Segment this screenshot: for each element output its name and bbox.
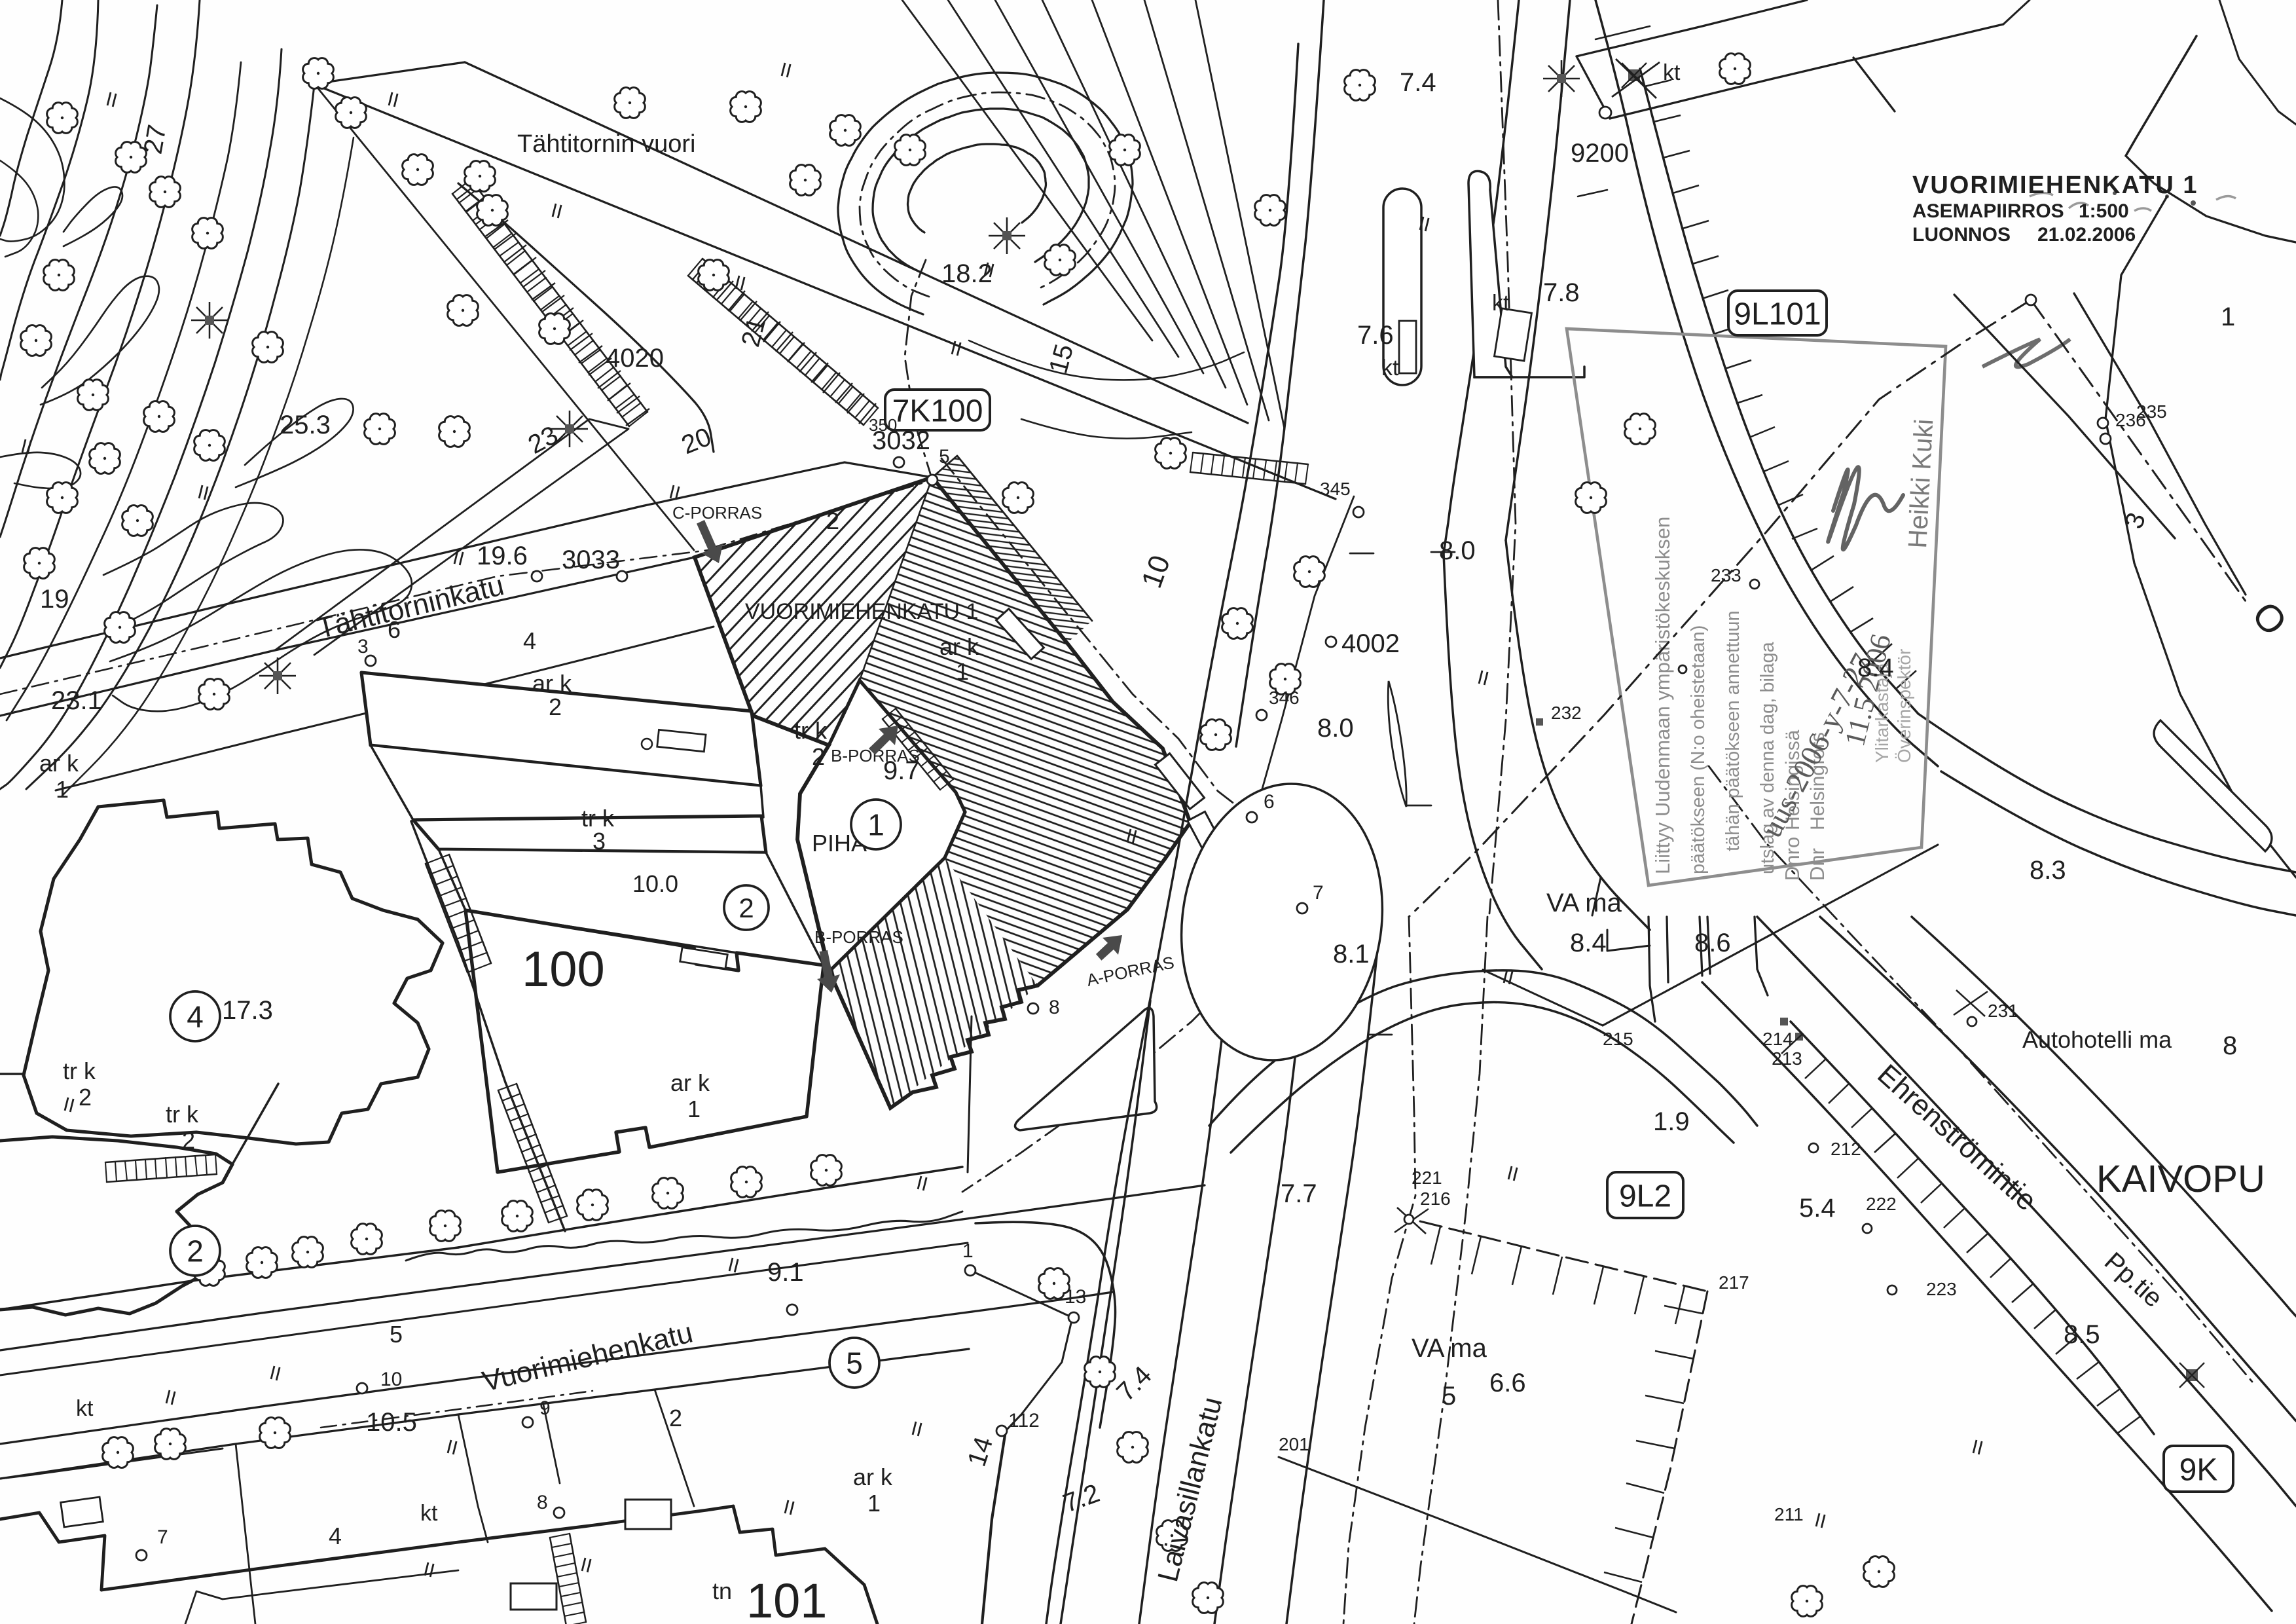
svg-text:2: 2: [182, 1127, 195, 1154]
svg-text:18.2: 18.2: [941, 259, 993, 288]
svg-text:4: 4: [523, 627, 536, 654]
svg-text:Dnr: Dnr: [1806, 848, 1829, 881]
svg-text:8.0: 8.0: [1439, 536, 1476, 565]
svg-text:1: 1: [2221, 303, 2235, 331]
svg-text:201: 201: [1279, 1434, 1309, 1454]
svg-text:ar k: ar k: [939, 633, 979, 660]
svg-text:112: 112: [1008, 1410, 1040, 1431]
svg-text:VA ma: VA ma: [1412, 1334, 1487, 1363]
svg-text:4: 4: [329, 1522, 342, 1549]
svg-text:7.8: 7.8: [1543, 278, 1580, 307]
svg-text:tn: tn: [712, 1578, 732, 1604]
svg-text:1: 1: [962, 1240, 974, 1262]
svg-text:KAIVOPU: KAIVOPU: [2096, 1158, 2265, 1200]
svg-text:7.6: 7.6: [1357, 321, 1394, 350]
svg-text:tähän päätökseen annettuun: tähän päätökseen annettuun: [1722, 610, 1743, 851]
svg-text:9200: 9200: [1571, 139, 1629, 168]
svg-text:5: 5: [939, 446, 950, 468]
svg-text:7K100: 7K100: [892, 394, 983, 428]
svg-text:23.1: 23.1: [51, 686, 102, 715]
svg-text:9: 9: [539, 1397, 551, 1419]
svg-text:2: 2: [669, 1405, 682, 1431]
svg-text:17.3: 17.3: [222, 996, 273, 1025]
svg-text:VUORIMIEHENKATU 1: VUORIMIEHENKATU 1: [1912, 172, 2198, 199]
svg-text:VUORIMIEHENKATU 1: VUORIMIEHENKATU 1: [745, 599, 978, 624]
svg-text:4002: 4002: [1341, 629, 1400, 658]
svg-text:päätökseen (N:o oheistetaan): päätökseen (N:o oheistetaan): [1688, 625, 1709, 874]
svg-text:ar k: ar k: [39, 750, 79, 777]
svg-text:3033: 3033: [562, 545, 620, 574]
svg-text:8.4: 8.4: [1570, 929, 1607, 957]
svg-text:Liittyy Uudenmaan ympäristökes: Liittyy Uudenmaan ympäristökeskuksen: [1651, 517, 1674, 874]
svg-text:8.5: 8.5: [2064, 1320, 2100, 1349]
svg-text:9.1: 9.1: [767, 1258, 804, 1287]
svg-text:ar k: ar k: [532, 670, 572, 697]
svg-text:1:500: 1:500: [2079, 200, 2129, 222]
svg-text:9.7: 9.7: [883, 756, 920, 785]
svg-text:25.3: 25.3: [280, 411, 331, 439]
svg-text:236: 236: [2115, 410, 2146, 430]
svg-text:ar k: ar k: [853, 1464, 893, 1490]
svg-text:9K: 9K: [2179, 1452, 2218, 1487]
svg-text:8.0: 8.0: [1317, 714, 1354, 743]
svg-text:Tähtitornin vuori: Tähtitornin vuori: [517, 130, 695, 158]
svg-text:7: 7: [157, 1526, 168, 1548]
svg-text:3: 3: [357, 636, 369, 657]
svg-text:2: 2: [738, 893, 754, 923]
svg-text:233: 233: [1711, 565, 1741, 585]
svg-text:10.0: 10.0: [632, 870, 678, 897]
svg-text:kt: kt: [420, 1501, 438, 1526]
svg-text:27: 27: [139, 122, 172, 156]
svg-text:9L2: 9L2: [1619, 1179, 1671, 1213]
svg-text:kt: kt: [1663, 60, 1681, 85]
svg-text:tr k: tr k: [794, 717, 828, 744]
svg-text:4: 4: [187, 1000, 204, 1034]
svg-text:6: 6: [388, 616, 401, 643]
svg-text:Dnro: Dnro: [1781, 837, 1804, 881]
svg-text:19: 19: [40, 585, 69, 614]
svg-text:19.6: 19.6: [477, 542, 528, 570]
svg-text:tr k: tr k: [166, 1101, 199, 1128]
svg-text:LUONNOS: LUONNOS: [1912, 224, 2011, 246]
svg-text:VA ma: VA ma: [1546, 889, 1622, 917]
svg-text:1: 1: [867, 1490, 881, 1517]
svg-text:213: 213: [1772, 1048, 1802, 1069]
svg-text:1: 1: [956, 658, 969, 685]
svg-text:2: 2: [79, 1084, 92, 1111]
svg-text:ASEMAPIIRROS: ASEMAPIIRROS: [1912, 200, 2064, 222]
svg-text:231: 231: [1988, 1001, 2018, 1021]
svg-text:kt: kt: [1492, 291, 1510, 316]
svg-text:9L101: 9L101: [1734, 297, 1821, 331]
svg-text:8.1: 8.1: [1333, 940, 1370, 969]
svg-text:350: 350: [869, 415, 897, 435]
svg-text:4020: 4020: [606, 344, 664, 373]
svg-text:tr k: tr k: [63, 1058, 96, 1084]
svg-text:10.5: 10.5: [366, 1408, 417, 1437]
svg-text:8: 8: [2223, 1031, 2237, 1060]
svg-text:7: 7: [1313, 882, 1324, 904]
svg-text:8.6: 8.6: [1694, 929, 1731, 957]
svg-text:7.4: 7.4: [1400, 68, 1436, 97]
svg-text:21.02.2006: 21.02.2006: [2037, 224, 2136, 246]
svg-text:101: 101: [746, 1574, 827, 1624]
svg-text:kt: kt: [76, 1396, 94, 1421]
svg-text:2: 2: [187, 1234, 204, 1268]
svg-text:1: 1: [867, 808, 884, 842]
svg-text:6: 6: [1264, 791, 1275, 813]
svg-text:215: 215: [1603, 1029, 1633, 1049]
svg-text:221: 221: [1412, 1168, 1442, 1188]
svg-text:1: 1: [56, 776, 69, 803]
svg-text:1: 1: [687, 1096, 701, 1122]
svg-text:216: 216: [1420, 1189, 1451, 1209]
svg-text:B-PORRAS: B-PORRAS: [814, 927, 903, 947]
svg-text:1.9: 1.9: [1653, 1107, 1690, 1136]
svg-text:214: 214: [1762, 1029, 1793, 1049]
svg-text:5.4: 5.4: [1799, 1194, 1836, 1223]
svg-text:5: 5: [1442, 1382, 1456, 1411]
svg-text:2: 2: [826, 507, 839, 534]
svg-text:13: 13: [1065, 1286, 1086, 1308]
svg-text:5: 5: [390, 1321, 403, 1348]
svg-text:100: 100: [522, 942, 605, 997]
svg-text:3: 3: [592, 828, 606, 855]
svg-text:utslag av denna dag, bilaga: utslag av denna dag, bilaga: [1757, 641, 1778, 874]
svg-text:8.3: 8.3: [2030, 856, 2066, 885]
svg-text:10: 10: [380, 1369, 402, 1390]
svg-text:8: 8: [1049, 997, 1060, 1018]
svg-text:222: 222: [1866, 1194, 1897, 1214]
svg-text:2: 2: [549, 693, 562, 720]
svg-text:7.7: 7.7: [1281, 1179, 1317, 1208]
svg-text:kt: kt: [1381, 356, 1399, 380]
svg-text:ar k: ar k: [670, 1069, 710, 1096]
svg-text:8.4: 8.4: [1857, 654, 1894, 682]
svg-text:211: 211: [1774, 1504, 1804, 1524]
svg-text:346: 346: [1269, 688, 1300, 708]
svg-text:8: 8: [537, 1492, 548, 1513]
svg-text:6.6: 6.6: [1489, 1369, 1526, 1397]
svg-text:345: 345: [1320, 479, 1351, 499]
svg-text:223: 223: [1926, 1279, 1957, 1299]
svg-text:2: 2: [812, 743, 825, 770]
svg-text:Överinspektör: Överinspektör: [1894, 649, 1914, 763]
svg-text:C-PORRAS: C-PORRAS: [672, 503, 762, 523]
svg-text:5: 5: [846, 1346, 863, 1380]
svg-text:217: 217: [1719, 1272, 1749, 1293]
svg-text:212: 212: [1831, 1139, 1861, 1159]
svg-text:Autohotelli ma: Autohotelli ma: [2022, 1026, 2172, 1053]
svg-text:232: 232: [1551, 703, 1582, 723]
